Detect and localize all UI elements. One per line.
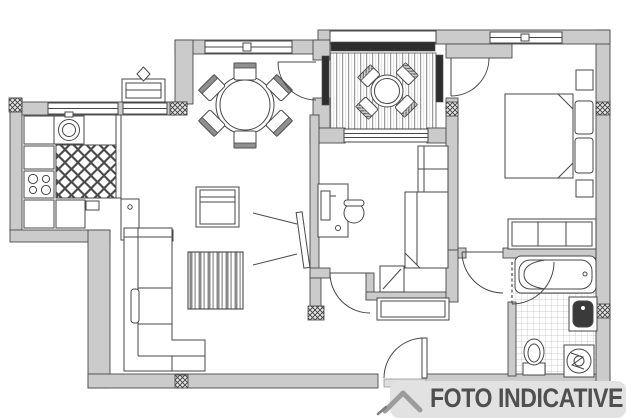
study-shelf <box>380 266 404 292</box>
foto-indicative-badge: FOTO INDICATIVE <box>378 381 626 418</box>
kitchen-cabinet <box>86 201 99 210</box>
bedroom-wardrobe-icon <box>508 219 596 249</box>
wall-living-left <box>88 230 110 388</box>
wall-right <box>596 30 610 388</box>
radiator-icon <box>122 67 165 102</box>
window <box>48 103 118 114</box>
entrance-door <box>384 338 427 378</box>
wall-bathroom-left <box>508 302 516 376</box>
wall-study-door-stub <box>310 268 330 278</box>
dining-table-icon <box>199 63 293 148</box>
column-hatch <box>596 304 610 318</box>
wall-living-hall <box>310 278 321 307</box>
pillow <box>575 101 593 134</box>
floor-plan-drawing: FOTO INDICATIVE <box>0 0 626 418</box>
door-study <box>330 273 370 313</box>
tv-cabinet-icon <box>188 252 243 309</box>
column-hatch <box>175 375 188 388</box>
checker-floor <box>56 145 116 198</box>
stove-icon <box>24 171 54 198</box>
wall-bedroom-door-beam <box>446 44 512 58</box>
tv-icon <box>253 212 310 268</box>
toilet-icon <box>523 339 545 375</box>
kitchen <box>56 145 116 198</box>
column-hatch <box>170 102 187 115</box>
coffee-table-icon <box>196 187 239 227</box>
column-hatch <box>308 306 324 320</box>
kitchen-cabinet <box>56 200 85 228</box>
column-hatch <box>446 102 458 116</box>
wardrobe-icon <box>418 146 448 192</box>
kitchen-cabinet <box>24 146 54 169</box>
window <box>123 103 167 114</box>
window <box>205 41 292 53</box>
kitchen-sink-icon <box>54 112 84 144</box>
kitchen-cabinet <box>24 116 54 144</box>
washing-machine-icon <box>564 345 594 377</box>
door-bedroom <box>451 58 489 96</box>
kitchen-cabinet <box>24 200 54 228</box>
wall-kitchen-left <box>10 98 22 232</box>
column-hatch <box>9 98 22 112</box>
washbasin-icon <box>569 297 597 331</box>
desk-icon <box>318 184 348 237</box>
pillow <box>575 138 593 173</box>
column-hatch <box>596 102 610 115</box>
wall-dining-left <box>175 40 193 104</box>
bathtub-icon <box>515 256 596 293</box>
nightstand-icon <box>576 70 593 90</box>
nightstand-icon <box>576 180 593 197</box>
window <box>490 32 562 43</box>
floor-plan-page: FOTO INDICATIVE <box>0 0 626 418</box>
hallway-cabinet-icon <box>377 298 449 320</box>
double-bed-icon <box>505 94 593 178</box>
door-corridor <box>462 252 503 293</box>
office-chair-icon <box>344 200 364 223</box>
wall-bottom-left <box>88 374 378 388</box>
badge-label: FOTO INDICATIVE <box>430 383 623 413</box>
single-bed-icon <box>405 192 448 268</box>
kitchen-partition <box>116 115 121 198</box>
